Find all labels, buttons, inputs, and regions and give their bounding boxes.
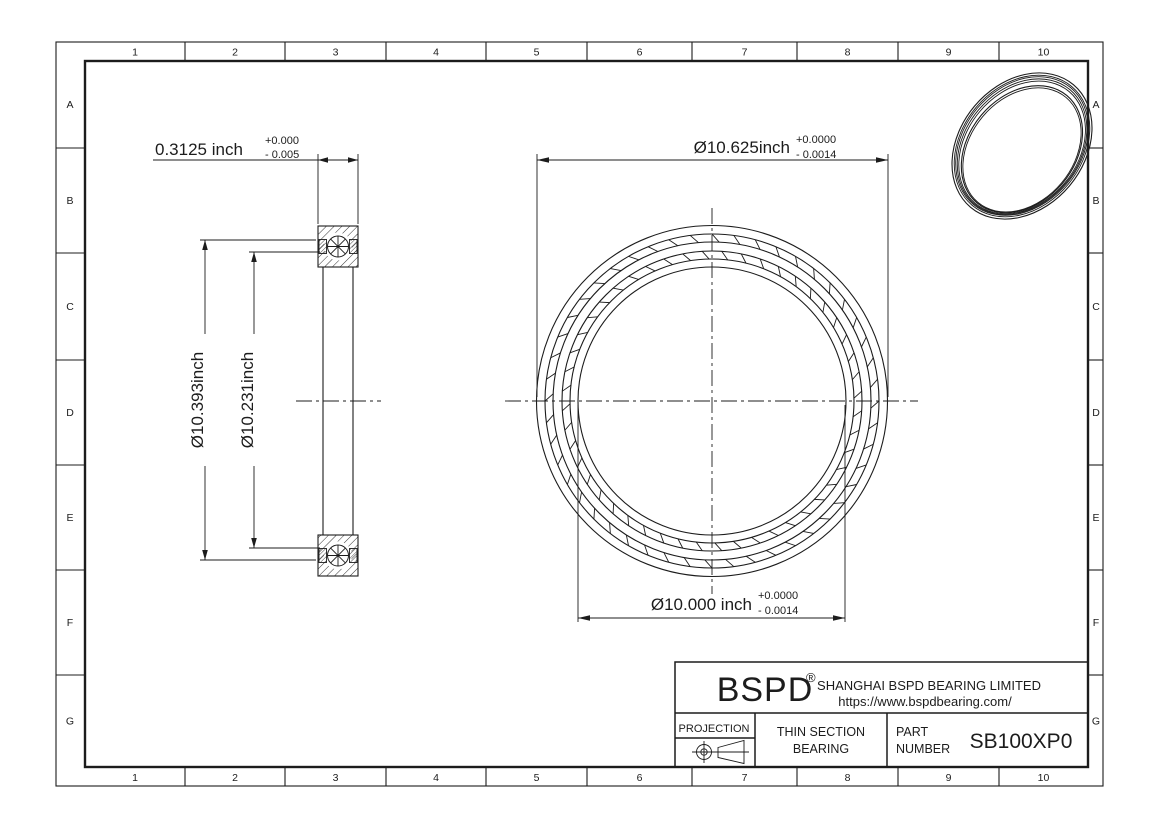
ring-section-bottom: [318, 535, 358, 576]
front-bore-dim: Ø10.000 inch: [651, 595, 752, 614]
cage-pocket-separator: [629, 276, 639, 279]
grid-row-label: B: [1092, 195, 1099, 207]
cage-pocket-separator: [853, 318, 856, 328]
cage-pocket-separator: [594, 508, 595, 519]
section-inner-dim: Ø10.231inch: [238, 352, 257, 448]
cage-pocket-separator: [628, 515, 629, 525]
grid-column-label: 3: [333, 772, 339, 784]
tolerance-lower: - 0.0014: [796, 149, 836, 161]
cage-pocket-separator: [599, 302, 609, 303]
cage-pocket-separator: [854, 391, 862, 398]
seal-section: [319, 549, 327, 563]
cage-pocket-separator: [751, 537, 760, 543]
cage-pocket-separator: [769, 531, 778, 535]
cage-pocket-separator: [696, 542, 702, 551]
seal-section: [350, 549, 358, 563]
front-od-dim: Ø10.625inch: [694, 138, 790, 157]
grid-column-label: 5: [534, 47, 540, 59]
grid-column-label: 4: [433, 772, 439, 784]
cage-pocket-separator: [562, 385, 571, 391]
cage-pocket-separator: [705, 560, 712, 568]
grid-column-label: 9: [946, 772, 952, 784]
grid-row-label: E: [1092, 512, 1099, 524]
cage-pocket-separator: [726, 559, 734, 566]
cage-pocket-separator: [842, 335, 846, 344]
cage-pocket-separator: [546, 415, 553, 423]
od-dimension: Ø10.625inch +0.0000 - 0.0014: [537, 134, 888, 397]
grid-column-label: 8: [845, 772, 851, 784]
cage-pocket-separator: [702, 251, 709, 259]
cage-pocket-separator: [587, 317, 597, 318]
cage-pocket-separator: [551, 435, 557, 444]
tolerance-upper: +0.0000: [758, 590, 798, 602]
grid-column-label: 7: [742, 47, 748, 59]
grid-column-label: 7: [742, 772, 748, 784]
grid-row-label: A: [66, 99, 73, 111]
seal-section: [319, 240, 327, 254]
arrowhead: [348, 157, 358, 163]
grid-row-label: F: [67, 617, 73, 629]
cage-pocket-separator: [580, 492, 582, 503]
product-type-line1: THIN SECTION: [777, 725, 865, 739]
grid-row-label: C: [1092, 301, 1100, 313]
cage-pocket-separator: [785, 542, 795, 545]
cage-pocket-separator: [826, 484, 836, 485]
grid-row-label: G: [66, 716, 74, 728]
isometric-view: [923, 45, 1121, 247]
cage-pocket-separator: [785, 523, 795, 526]
front-view: Ø10.625inch +0.0000 - 0.0014 Ø10.000 inc…: [505, 134, 918, 622]
grid-row-label: G: [1092, 716, 1100, 728]
grid-column-label: 10: [1038, 772, 1050, 784]
cage-pocket-separator: [580, 299, 591, 300]
cage-pocket-separator: [795, 276, 796, 286]
grid-column-label: 8: [845, 47, 851, 59]
inner-border: [85, 61, 1088, 767]
cage-pocket-separator: [599, 490, 601, 500]
cage-pocket-separator: [558, 455, 563, 465]
part-number: SB100XP0: [970, 730, 1073, 753]
cage-pocket-separator: [853, 411, 862, 417]
cage-pocket-separator: [814, 499, 824, 500]
grid-row-label: C: [66, 301, 74, 313]
cage-pocket-separator: [823, 302, 825, 312]
bore-dimension: Ø10.000 inch +0.0000 - 0.0014: [578, 405, 845, 622]
part-label-line2: NUMBER: [896, 742, 950, 756]
section-width-dim: 0.3125 inch: [155, 140, 243, 159]
company-logo: BSPD: [717, 671, 814, 709]
grid-row-label: D: [66, 407, 74, 419]
cage-pocket-separator: [648, 247, 658, 252]
grid-column-label: 3: [333, 47, 339, 59]
cage-pocket-separator: [819, 518, 830, 519]
cage-pocket-separator: [870, 379, 877, 387]
grid-column-label: 6: [637, 772, 643, 784]
arrowhead: [318, 157, 328, 163]
cage-pocket-separator: [594, 283, 605, 284]
cage-pocket-separator: [834, 503, 845, 504]
cage-pocket-separator: [803, 531, 814, 533]
grid-column-label: 9: [946, 47, 952, 59]
cage-pocket-separator: [629, 256, 639, 259]
grid-column-label: 4: [433, 47, 439, 59]
part-label-line1: PART: [896, 725, 929, 739]
cage-pocket-separator: [562, 404, 570, 411]
cage-pocket-separator: [834, 318, 837, 328]
tolerance-upper: +0.000: [265, 135, 299, 147]
cage-pocket-separator: [610, 523, 611, 534]
cage-pocket-separator: [715, 543, 722, 551]
cage-pocket-separator: [587, 474, 590, 484]
grid-row-label: A: [1092, 99, 1099, 111]
cage-pocket-separator: [842, 299, 844, 310]
grid-column-label: 6: [637, 47, 643, 59]
tolerance-upper: +0.0000: [796, 134, 836, 146]
grid-column-label: 5: [534, 772, 540, 784]
company-name: SHANGHAI BSPD BEARING LIMITED: [817, 678, 1041, 693]
projection-label: PROJECTION: [679, 723, 750, 735]
cage-pocket-separator: [862, 337, 867, 347]
cage-pocket-separator: [570, 440, 576, 449]
grid-column-label: 1: [132, 47, 138, 59]
grid-column-label: 2: [232, 772, 238, 784]
cage-pocket-separator: [722, 251, 728, 260]
company-website: https://www.bspdbearing.com/: [838, 694, 1012, 709]
product-type-line2: BEARING: [793, 742, 849, 756]
cage-pocket-separator: [669, 240, 678, 246]
cage-pocket-separator: [733, 541, 741, 548]
grid-column-label: 1: [132, 772, 138, 784]
cage-pocket-separator: [867, 358, 873, 367]
cage-pocket-separator: [690, 235, 698, 242]
drawing-canvas: 1122334455667788991010AABBCCDDEEFFGG 0.3…: [0, 0, 1170, 827]
grid-column-label: 10: [1038, 47, 1050, 59]
title-block: BSPD ® SHANGHAI BSPD BEARING LIMITED htt…: [675, 662, 1088, 767]
seal-section: [350, 240, 358, 254]
cage-pocket-separator: [613, 503, 614, 513]
cage-pocket-separator: [746, 556, 755, 562]
cage-pocket-separator: [848, 353, 854, 362]
grid-row-label: B: [66, 195, 73, 207]
tolerance-lower: - 0.0014: [758, 605, 798, 617]
first-angle-projection-icon: [692, 741, 749, 764]
registered-trademark-icon: ®: [806, 670, 816, 685]
cage-pocket-separator: [545, 394, 553, 401]
cage-pocket-separator: [829, 283, 830, 294]
grid-row-label: F: [1093, 617, 1099, 629]
cage-pocket-separator: [683, 254, 691, 261]
cage-pocket-separator: [852, 372, 859, 380]
cage-pocket-separator: [646, 266, 655, 270]
cage-pocket-separator: [810, 288, 811, 298]
cage-pocket-separator: [664, 259, 673, 265]
ring-section-top: [318, 226, 358, 267]
cage-pocket-separator: [814, 269, 815, 280]
cage-pocket-separator: [613, 288, 623, 290]
tolerance-lower: - 0.005: [265, 149, 299, 161]
cage-pocket-separator: [766, 551, 776, 556]
section-outer-dim: Ø10.393inch: [188, 352, 207, 448]
grid-row-label: E: [66, 512, 73, 524]
cage-pocket-separator: [871, 401, 879, 408]
cage-pocket-separator: [712, 234, 719, 242]
cage-pocket-separator: [610, 269, 621, 271]
cage-pocket-separator: [565, 422, 572, 430]
drawing-sheet: 1122334455667788991010AABBCCDDEEFFGG 0.3…: [0, 0, 1170, 827]
section-view: 0.3125 inch +0.000 - 0.005: [153, 135, 381, 576]
inner-race-dimension: Ø10.231inch: [238, 252, 320, 548]
grid-column-label: 2: [232, 47, 238, 59]
grid-row-label: D: [1092, 407, 1100, 419]
cage-pocket-separator: [801, 512, 811, 514]
cage-pocket-separator: [567, 474, 570, 484]
